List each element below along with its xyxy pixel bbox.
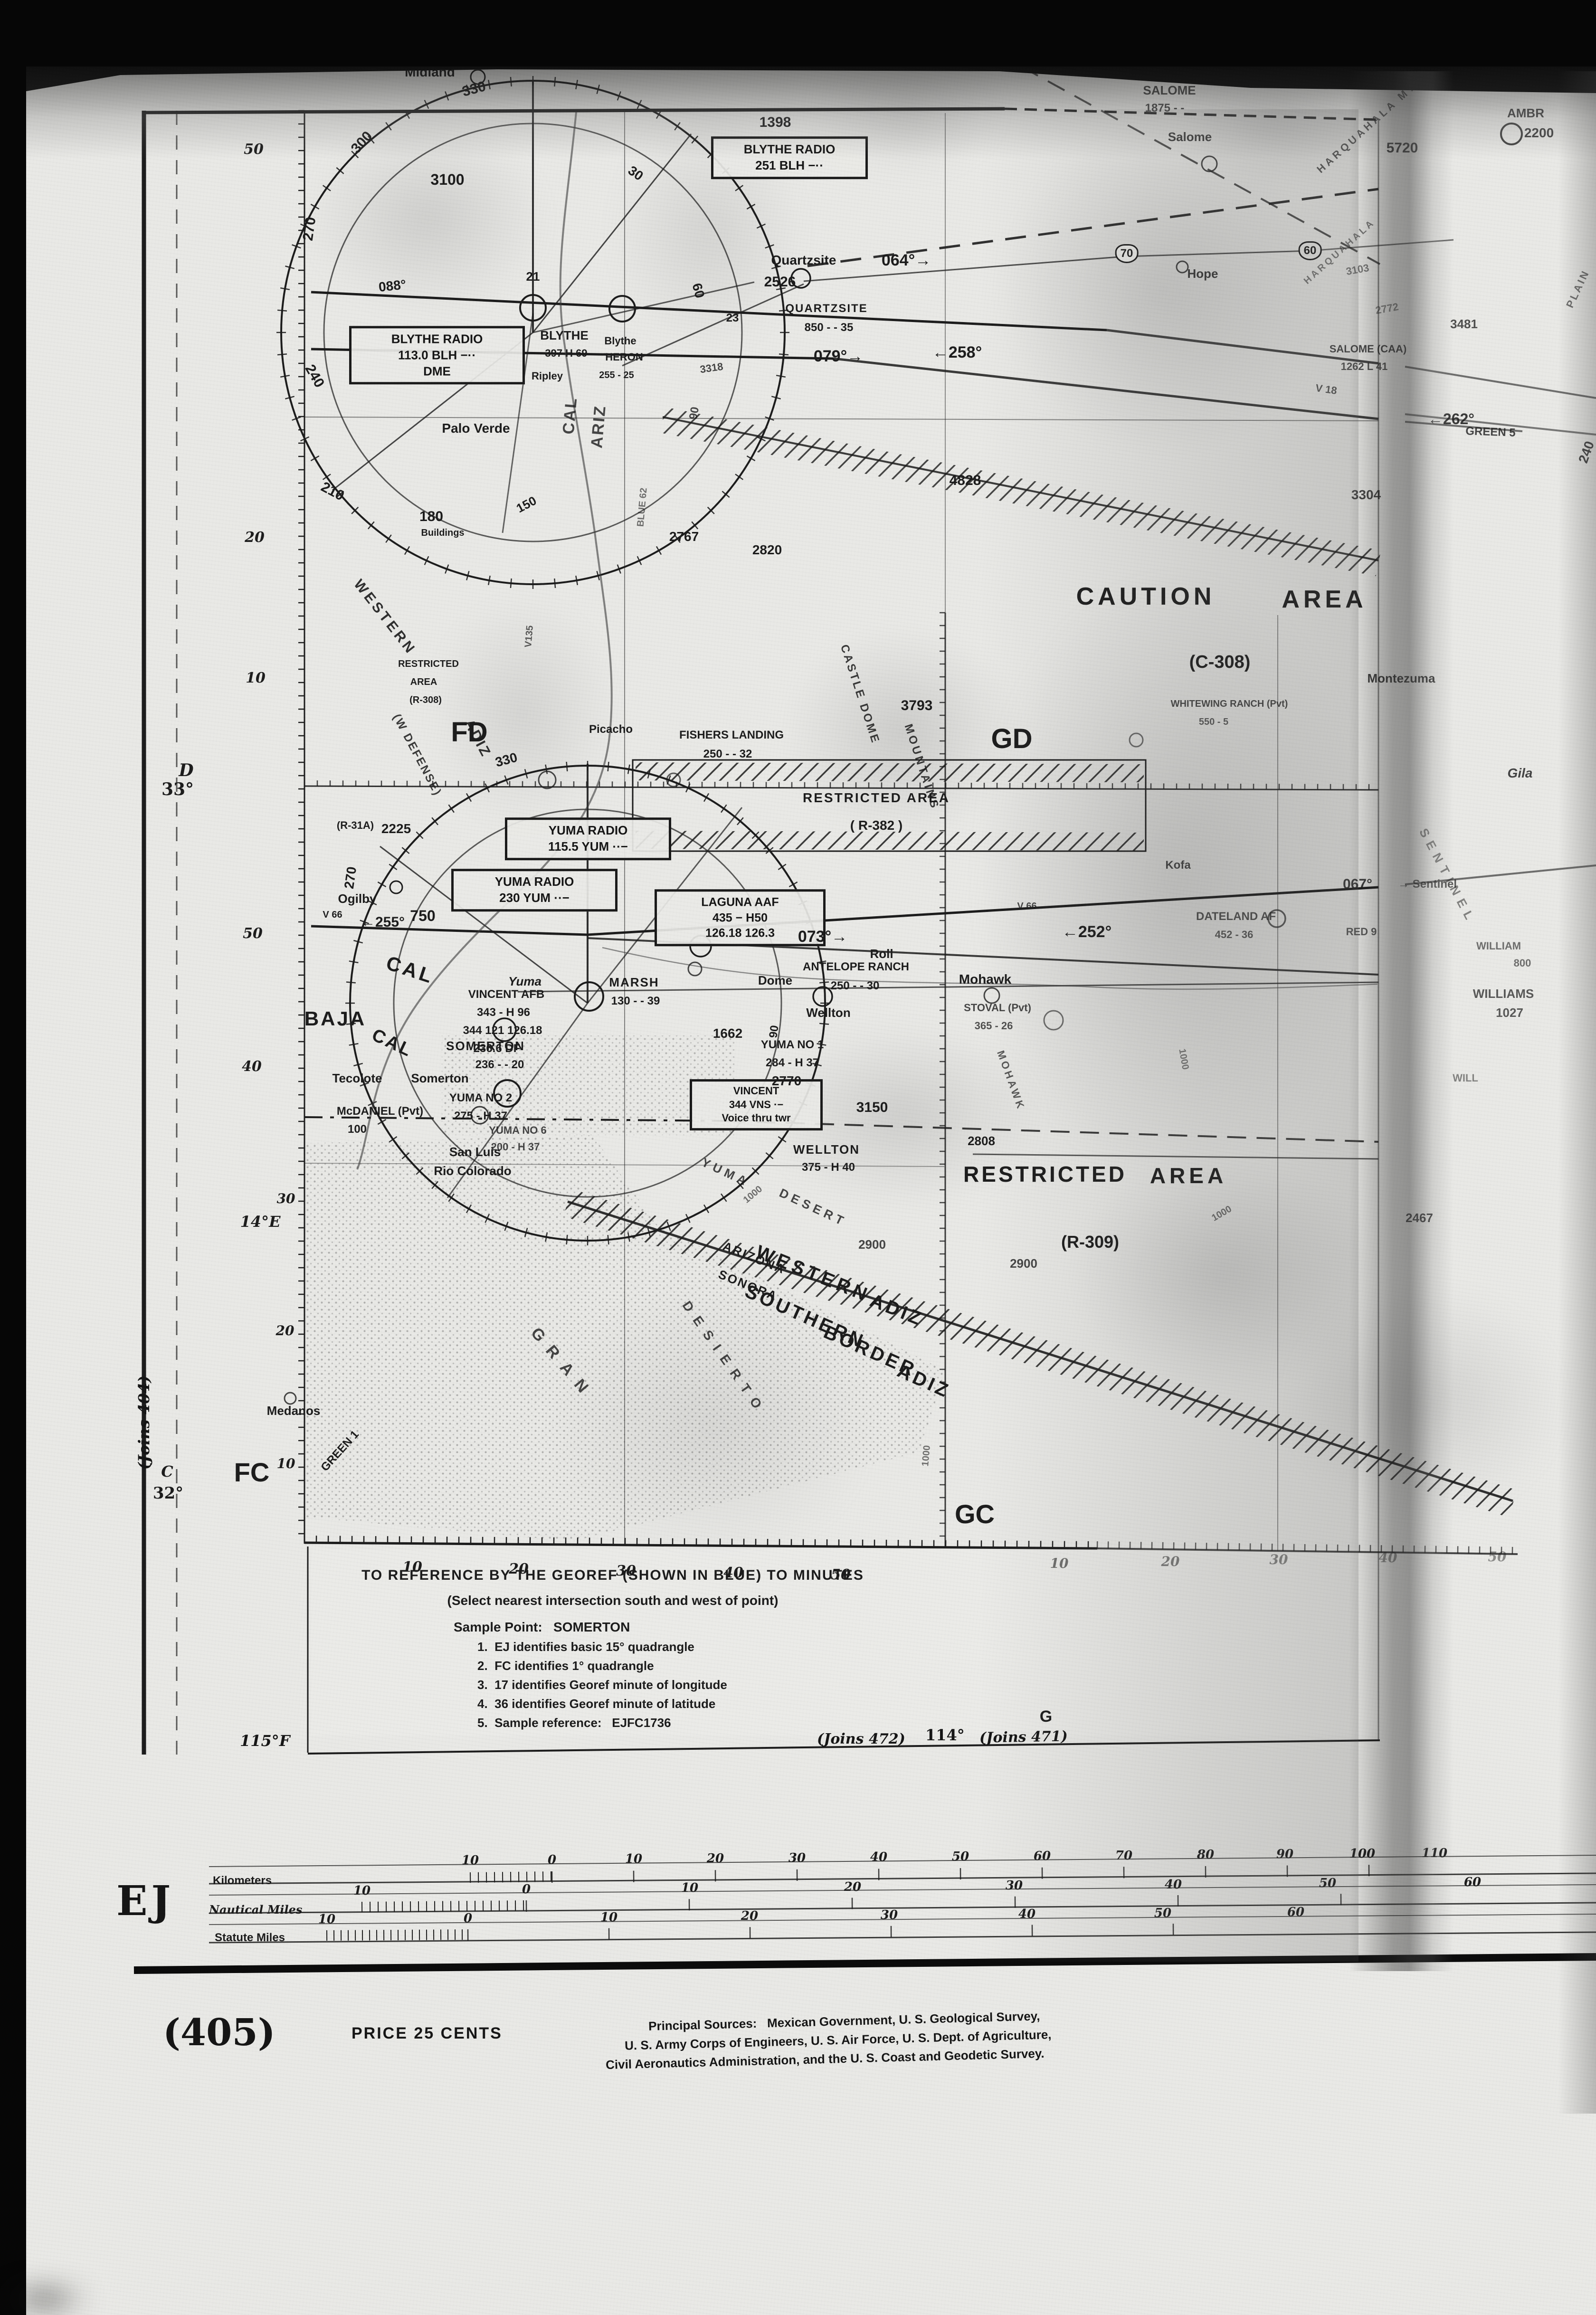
map-label: 2263	[864, 35, 896, 49]
map-label: 3375	[597, 38, 629, 53]
longitude-label: 114°	[925, 1726, 965, 1744]
chart-paper: BLYTHE RADIO251 BLH −··BLYTHE RADIO113.0…	[26, 0, 1596, 2315]
joins-label-right: (Joins 471)	[979, 1728, 1068, 1746]
longitude-label-left: 115°F	[240, 1732, 290, 1750]
sheet-number: (405)	[163, 2011, 275, 2054]
scanned-chart-page: BLYTHE RADIO251 BLH −··BLYTHE RADIO113.0…	[0, 0, 1596, 2315]
joins-label-side: (Joins 404)	[135, 1376, 153, 1470]
joins-label-center: (Joins 472)	[817, 1731, 905, 1747]
price-label: PRICE 25 CENTS	[351, 2024, 503, 2043]
footer-layer: EJ 115°F (Joins 472) 114° (Joins 471) (J…	[0, 0, 1596, 2315]
georef-quad-code: EJ	[116, 1877, 174, 1925]
